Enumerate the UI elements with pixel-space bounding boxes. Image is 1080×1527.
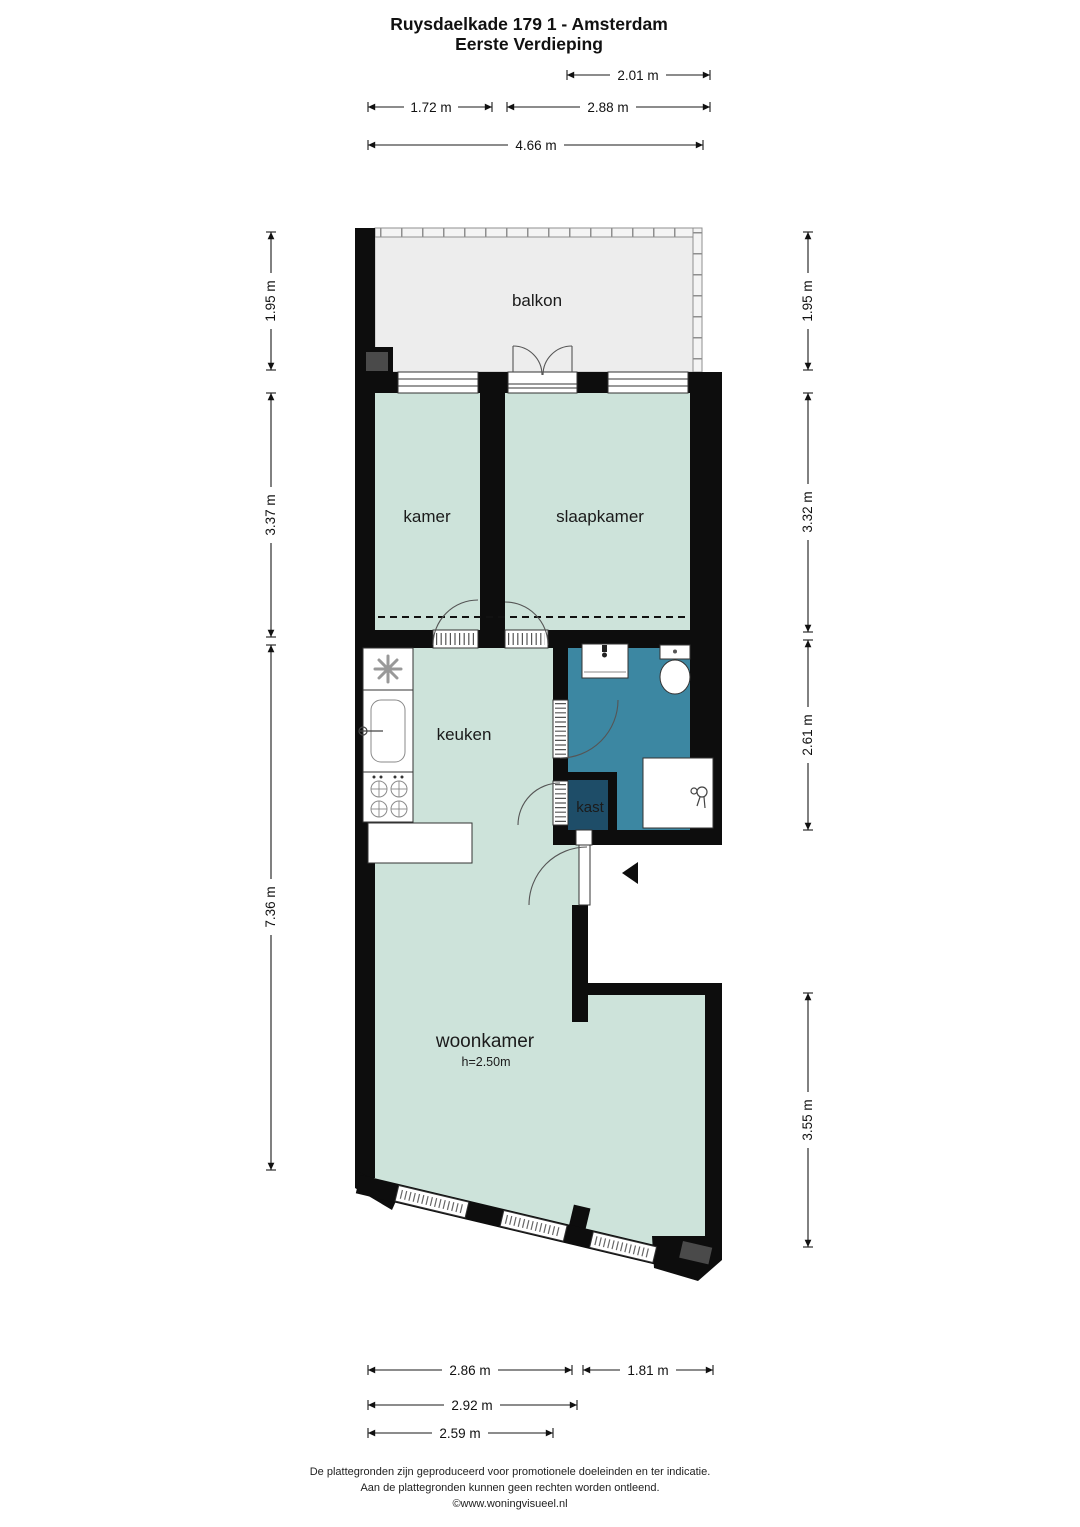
dimension-right-4: 3.55 m bbox=[800, 993, 815, 1247]
dimension-top-4: 4.66 m bbox=[368, 138, 703, 153]
dimension-right-3: 2.61 m bbox=[800, 640, 815, 830]
room-label-kast: kast bbox=[576, 799, 604, 816]
dimension-bottom-3: 2.92 m bbox=[368, 1398, 577, 1413]
svg-text:2.61 m: 2.61 m bbox=[800, 714, 815, 755]
room-label-ceiling-height: h=2.50m bbox=[462, 1055, 511, 1069]
footer-disclaimer: De plattegronden zijn geproduceerd voor … bbox=[0, 1464, 1020, 1512]
svg-text:1.95 m: 1.95 m bbox=[263, 280, 278, 321]
room-label-slaapkamer: slaapkamer bbox=[556, 507, 644, 526]
svg-text:2.88 m: 2.88 m bbox=[587, 100, 628, 115]
stairwell-landing bbox=[588, 845, 760, 983]
shower-icon bbox=[643, 758, 713, 828]
dimension-bottom-1: 2.86 m bbox=[368, 1363, 572, 1378]
window bbox=[398, 372, 478, 393]
footer-line-1: De plattegronden zijn geproduceerd voor … bbox=[0, 1464, 1020, 1480]
svg-text:2.86 m: 2.86 m bbox=[449, 1363, 490, 1378]
dimension-left-2: 3.37 m bbox=[263, 393, 278, 637]
dimension-left-1: 1.95 m bbox=[263, 232, 278, 370]
room-label-woonkamer: woonkamer bbox=[435, 1031, 535, 1052]
svg-text:2.59 m: 2.59 m bbox=[439, 1426, 480, 1441]
svg-text:4.66 m: 4.66 m bbox=[515, 138, 556, 153]
ventilation-fan-icon bbox=[363, 648, 413, 690]
kitchen-counter bbox=[368, 823, 472, 863]
dimension-right-1: 1.95 m bbox=[800, 232, 815, 370]
svg-text:1.95 m: 1.95 m bbox=[800, 280, 815, 321]
svg-text:3.37 m: 3.37 m bbox=[263, 494, 278, 535]
room-label-keuken: keuken bbox=[437, 725, 492, 744]
floor-plan-page: Ruysdaelkade 179 1 - Amsterdam Eerste Ve… bbox=[0, 0, 1080, 1527]
dimension-left-3: 7.36 m bbox=[263, 645, 278, 1170]
room-label-balkon: balkon bbox=[512, 291, 562, 310]
svg-text:1.72 m: 1.72 m bbox=[410, 100, 451, 115]
toilet-icon bbox=[660, 645, 690, 694]
dimension-right-2: 3.32 m bbox=[800, 393, 815, 632]
stove-icon bbox=[363, 772, 413, 822]
floor-plan-svg: balkon bbox=[0, 0, 1080, 1527]
svg-text:7.36 m: 7.36 m bbox=[263, 886, 278, 927]
dimension-top-3: 2.88 m bbox=[507, 100, 710, 115]
svg-text:3.55 m: 3.55 m bbox=[800, 1099, 815, 1140]
balcony-corner-block bbox=[366, 352, 388, 371]
dimension-bottom-4: 2.59 m bbox=[368, 1426, 553, 1441]
footer-copyright: ©www.woningvisueel.nl bbox=[0, 1496, 1020, 1512]
window bbox=[608, 372, 688, 393]
svg-text:1.81 m: 1.81 m bbox=[627, 1363, 668, 1378]
dimension-bottom-2: 1.81 m bbox=[583, 1363, 713, 1378]
washbasin-icon bbox=[582, 644, 628, 678]
balcony-area: balkon bbox=[375, 228, 702, 372]
sink-icon bbox=[359, 690, 413, 772]
dimension-top-2: 1.72 m bbox=[368, 100, 492, 115]
svg-text:2.92 m: 2.92 m bbox=[451, 1398, 492, 1413]
svg-text:2.01 m: 2.01 m bbox=[617, 68, 658, 83]
footer-line-2: Aan de plattegronden kunnen geen rechten… bbox=[0, 1480, 1020, 1496]
room-label-kamer: kamer bbox=[403, 507, 451, 526]
dimension-top-1: 2.01 m bbox=[567, 68, 710, 83]
svg-text:3.32 m: 3.32 m bbox=[800, 491, 815, 532]
